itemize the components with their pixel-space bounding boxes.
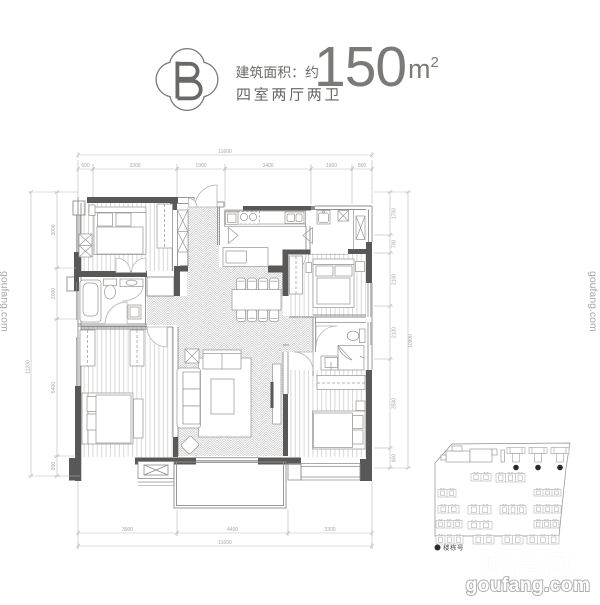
svg-text:3400: 3400 — [262, 163, 273, 169]
svg-text:10900: 10900 — [408, 334, 414, 348]
svg-text:3900: 3900 — [122, 527, 133, 533]
svg-text:800: 800 — [358, 163, 367, 169]
svg-text:1600: 1600 — [326, 163, 337, 169]
svg-text:1900: 1900 — [195, 163, 206, 169]
svg-text:800: 800 — [392, 454, 398, 463]
svg-text:2000: 2000 — [51, 288, 57, 299]
svg-text:3500: 3500 — [392, 398, 398, 409]
svg-text:11600: 11600 — [218, 540, 232, 546]
svg-text:3300: 3300 — [324, 527, 335, 533]
svg-text:goufang.com: goufang.com — [466, 575, 591, 596]
svg-text:11600: 11600 — [218, 149, 232, 155]
svg-text:2100: 2100 — [392, 327, 398, 338]
svg-text:3000: 3000 — [51, 224, 57, 235]
svg-text:goufang.com: goufang.com — [0, 271, 11, 332]
svg-text:700: 700 — [392, 240, 398, 249]
svg-text:600: 600 — [81, 163, 90, 169]
svg-text:5400: 5400 — [51, 382, 57, 393]
svg-text:11200: 11200 — [26, 360, 32, 374]
svg-text:1700: 1700 — [392, 208, 398, 219]
svg-text:800: 800 — [51, 462, 57, 471]
svg-text:goufang.com: goufang.com — [587, 271, 599, 332]
svg-text:2100: 2100 — [392, 274, 398, 285]
svg-text:4400: 4400 — [227, 527, 238, 533]
svg-text:3300: 3300 — [129, 163, 140, 169]
